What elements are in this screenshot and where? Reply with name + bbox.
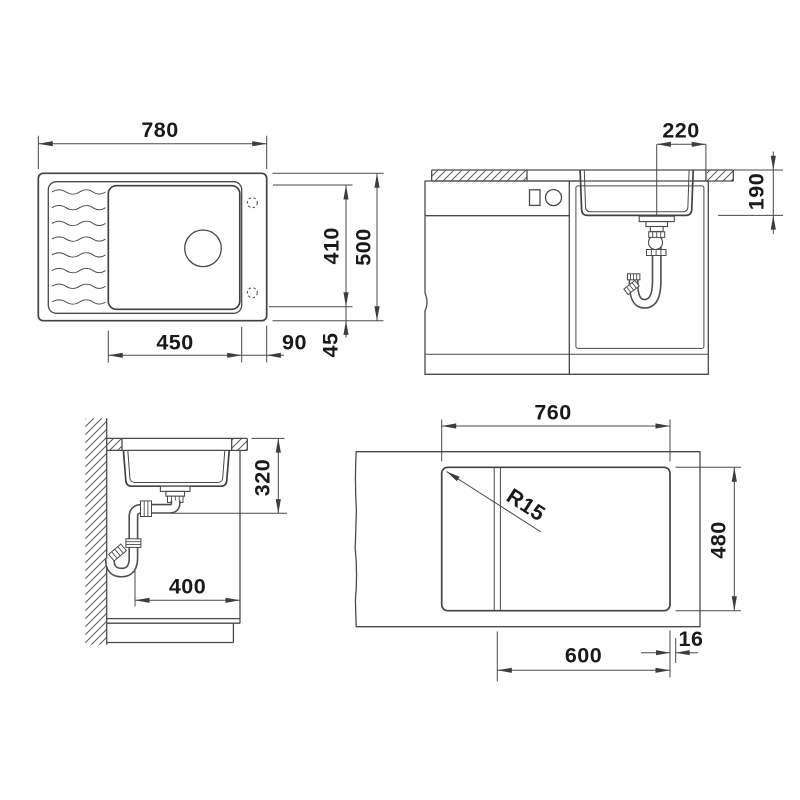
dim-label-16: 16 xyxy=(679,627,704,651)
dim-label-90: 90 xyxy=(282,331,307,355)
dim-label-500: 500 xyxy=(352,228,376,265)
downpipe-rib xyxy=(126,539,141,548)
dim-label-600: 600 xyxy=(565,644,602,668)
worktop-hatch-left xyxy=(432,171,527,181)
dim-label-190: 190 xyxy=(745,173,769,210)
worktop-hatch-front xyxy=(232,439,247,450)
elbow-rib xyxy=(141,501,152,517)
dim-label-450: 450 xyxy=(156,331,193,355)
dim-label-220: 220 xyxy=(662,119,699,143)
dim-label-320: 320 xyxy=(251,459,275,496)
dim-label-780: 780 xyxy=(141,118,178,142)
dim-label-760: 760 xyxy=(534,401,571,425)
dim-label-410: 410 xyxy=(320,227,344,264)
pipe-rib-1 xyxy=(649,232,665,238)
worktop-hatch-back xyxy=(107,439,122,450)
drawing-sheet: 780 500 410 45 450 90 xyxy=(0,0,800,800)
wall-hatch xyxy=(85,418,106,644)
dim-label-45: 45 xyxy=(319,333,343,358)
pipe-rib-2 xyxy=(647,250,667,256)
worktop-hatch-right xyxy=(707,171,733,181)
dim-label-480: 480 xyxy=(707,521,731,558)
technical-drawing: 780 500 410 45 450 90 xyxy=(0,0,800,800)
dim-label-400: 400 xyxy=(169,575,206,599)
pipe-rib-3 xyxy=(627,274,640,280)
